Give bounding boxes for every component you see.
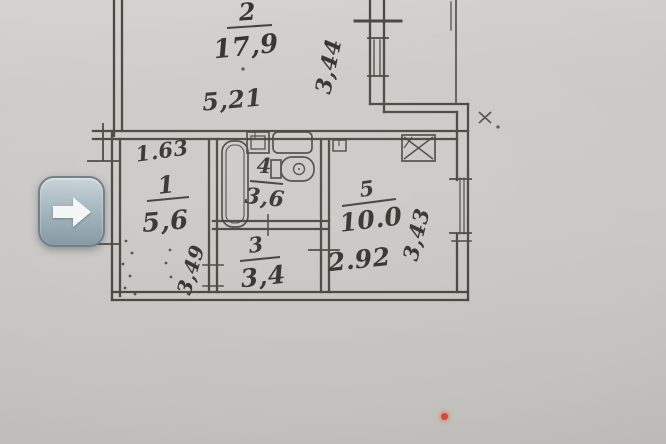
pen-marks	[122, 67, 500, 295]
room-4-area: 3,6	[244, 183, 286, 213]
room-1-number: 1	[156, 169, 176, 200]
red-dot-mark	[441, 413, 448, 420]
floorplan-photo: 2 17,9 5,21 3,44 1.63 1 5,6 3,49 4 3,6 3…	[0, 0, 666, 444]
room-1-height-dim: 3,49	[172, 242, 210, 298]
room-5-area: 10.0	[338, 201, 404, 237]
room-5-width-dim: 2.92	[325, 242, 392, 278]
room-1-area: 5,6	[141, 205, 190, 239]
room-2-area: 17,9	[212, 29, 280, 66]
room-3-number: 3	[247, 231, 265, 258]
room-2-number: 2	[237, 0, 257, 27]
room-3-area: 3,4	[239, 260, 287, 294]
next-arrow-button[interactable]	[38, 176, 105, 247]
shelf-icon	[273, 132, 312, 153]
room-2-height-dim: 3,44	[310, 36, 347, 96]
arrow-right-icon	[49, 192, 95, 232]
corner-cross-mark	[479, 112, 491, 123]
sink-icon	[247, 132, 269, 153]
room-2-width-dim: 5,21	[201, 82, 264, 116]
room-5-number: 5	[358, 175, 376, 202]
room-4-number: 4	[256, 153, 272, 179]
toilet-tank-icon	[271, 160, 281, 178]
toilet-bowl-icon	[281, 157, 314, 181]
room-5-height-dim: 3,43	[398, 206, 435, 264]
